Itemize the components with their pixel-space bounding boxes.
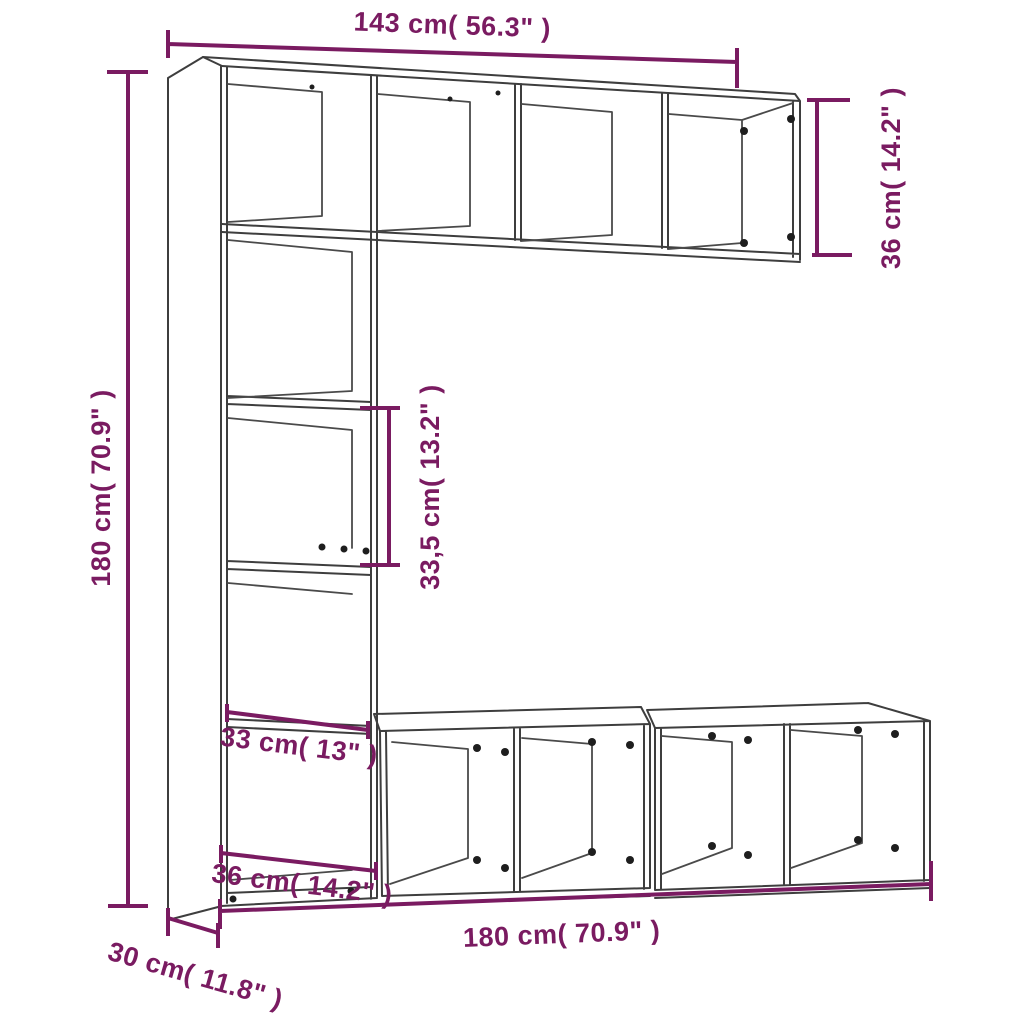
diagram-background (0, 0, 1024, 1024)
furniture-dimension-diagram: 143 cm( 56.3" ) 36 cm( 14.2" ) 180 cm( 7… (0, 0, 1024, 1024)
dimension-top-unit-height-label: 36 cm( 14.2" ) (876, 87, 906, 269)
dimension-shelf-spacing-label: 33,5 cm( 13.2" ) (415, 384, 445, 589)
dimension-total-height-label: 180 cm( 70.9" ) (86, 389, 116, 586)
diagram-canvas: 143 cm( 56.3" ) 36 cm( 14.2" ) 180 cm( 7… (0, 0, 1024, 1024)
